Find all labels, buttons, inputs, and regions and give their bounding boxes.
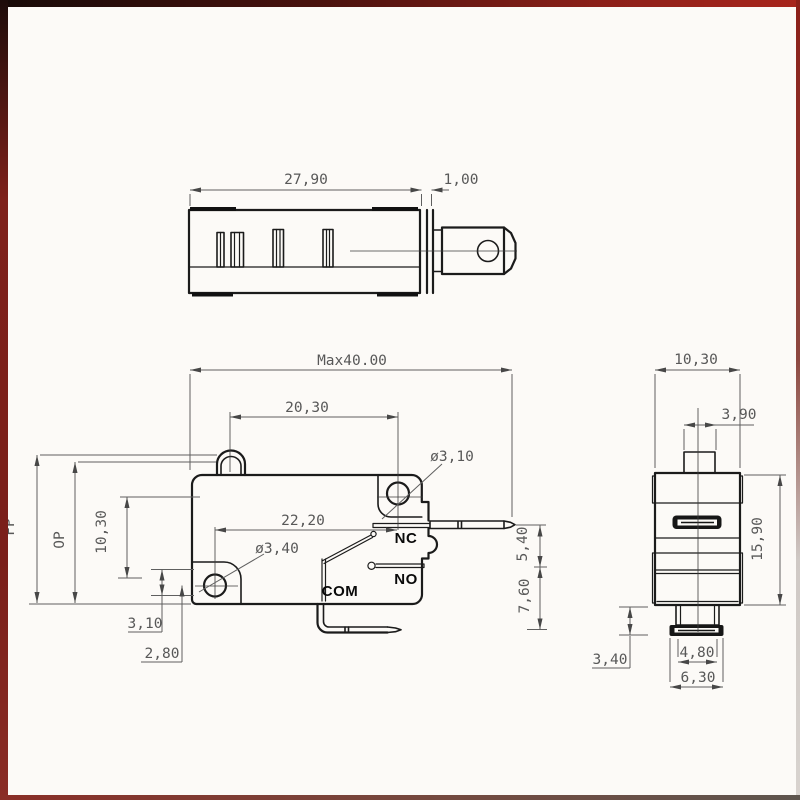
center-lines-front — [195, 412, 423, 599]
side-view-button — [684, 452, 715, 473]
label-no: NO — [394, 571, 418, 588]
dim-top-body-width: 27,90 — [190, 172, 432, 206]
dim-com-offset: 7,60 — [517, 567, 547, 630]
dim-hole-center-height: 10,30 — [94, 497, 200, 578]
dim-text-dia-3-40: ø3,40 — [255, 541, 299, 557]
top-view-terminal-slots — [217, 230, 333, 268]
dim-body-height: 15,90 — [744, 475, 786, 605]
dim-text-3-10: 3,10 — [128, 616, 163, 632]
dim-overall-length: Max40.00 — [190, 353, 512, 517]
dim-text-27-90: 27,90 — [284, 172, 328, 188]
photo-border-top — [0, 0, 800, 7]
plunger-button — [217, 451, 245, 475]
dim-text-dia-3-10: ø3,10 — [430, 449, 474, 465]
dim-text-2-80: 2,80 — [145, 646, 180, 662]
dim-text-max-40: Max40.00 — [317, 353, 387, 369]
photo-border-right — [796, 0, 800, 800]
dim-text-op: OP — [52, 531, 68, 549]
dim-text-10-30-right: 10,30 — [674, 352, 718, 368]
dim-text-5-40: 5,40 — [515, 527, 531, 562]
side-view: 10,30 3,90 15,90 3,40 4,80 — [592, 352, 786, 687]
label-nc: NC — [395, 530, 418, 547]
front-view-body: NC NO COM — [192, 451, 515, 633]
label-com: COM — [322, 583, 359, 600]
dim-button-width: 3,90 — [684, 407, 756, 450]
top-view: 27,90 1,00 — [189, 172, 517, 295]
technical-drawing-svg: 27,90 1,00 — [0, 0, 800, 800]
dim-nc-offset: 5,40 — [515, 525, 547, 567]
dim-bottom-hole-dia: ø3,40 — [199, 541, 299, 592]
top-mounting-boss — [378, 475, 422, 517]
dim-text-10-30-left: 10,30 — [94, 510, 110, 554]
top-view-body — [189, 209, 517, 295]
dim-terminal-inner-width: 4,80 — [678, 639, 717, 662]
dim-top-plate-width: 1,00 — [432, 172, 479, 190]
dim-text-15-90: 15,90 — [750, 517, 766, 561]
photo-border-left — [0, 0, 8, 800]
side-view-body — [653, 452, 743, 636]
dim-button-to-hole: 20,30 — [230, 400, 398, 417]
front-view: NC NO COM Max40.00 20,30 ø3,10 — [2, 353, 547, 662]
dim-text-7-60: 7,60 — [517, 579, 533, 614]
photo-border-bottom — [0, 795, 800, 800]
dim-text-6-30: 6,30 — [681, 670, 716, 686]
dim-text-3-40: 3,40 — [593, 652, 628, 668]
dim-hole-to-base: 3,10 — [128, 570, 194, 633]
dim-text-4-80: 4,80 — [680, 645, 715, 661]
nc-terminal-blade — [430, 521, 515, 529]
dim-hole-spacing: 22,20 — [215, 513, 397, 530]
side-bottom-terminal — [670, 605, 724, 636]
com-terminal-blade — [318, 604, 402, 633]
photo-frame: 27,90 1,00 — [0, 0, 800, 800]
dim-text-3-90: 3,90 — [722, 407, 757, 423]
dim-text-22-20: 22,20 — [281, 513, 325, 529]
dim-text-20-30: 20,30 — [285, 400, 329, 416]
side-terminal-slot — [673, 516, 722, 530]
dim-text-1-00: 1,00 — [444, 172, 479, 188]
dim-terminal-height: 3,40 — [592, 607, 648, 668]
